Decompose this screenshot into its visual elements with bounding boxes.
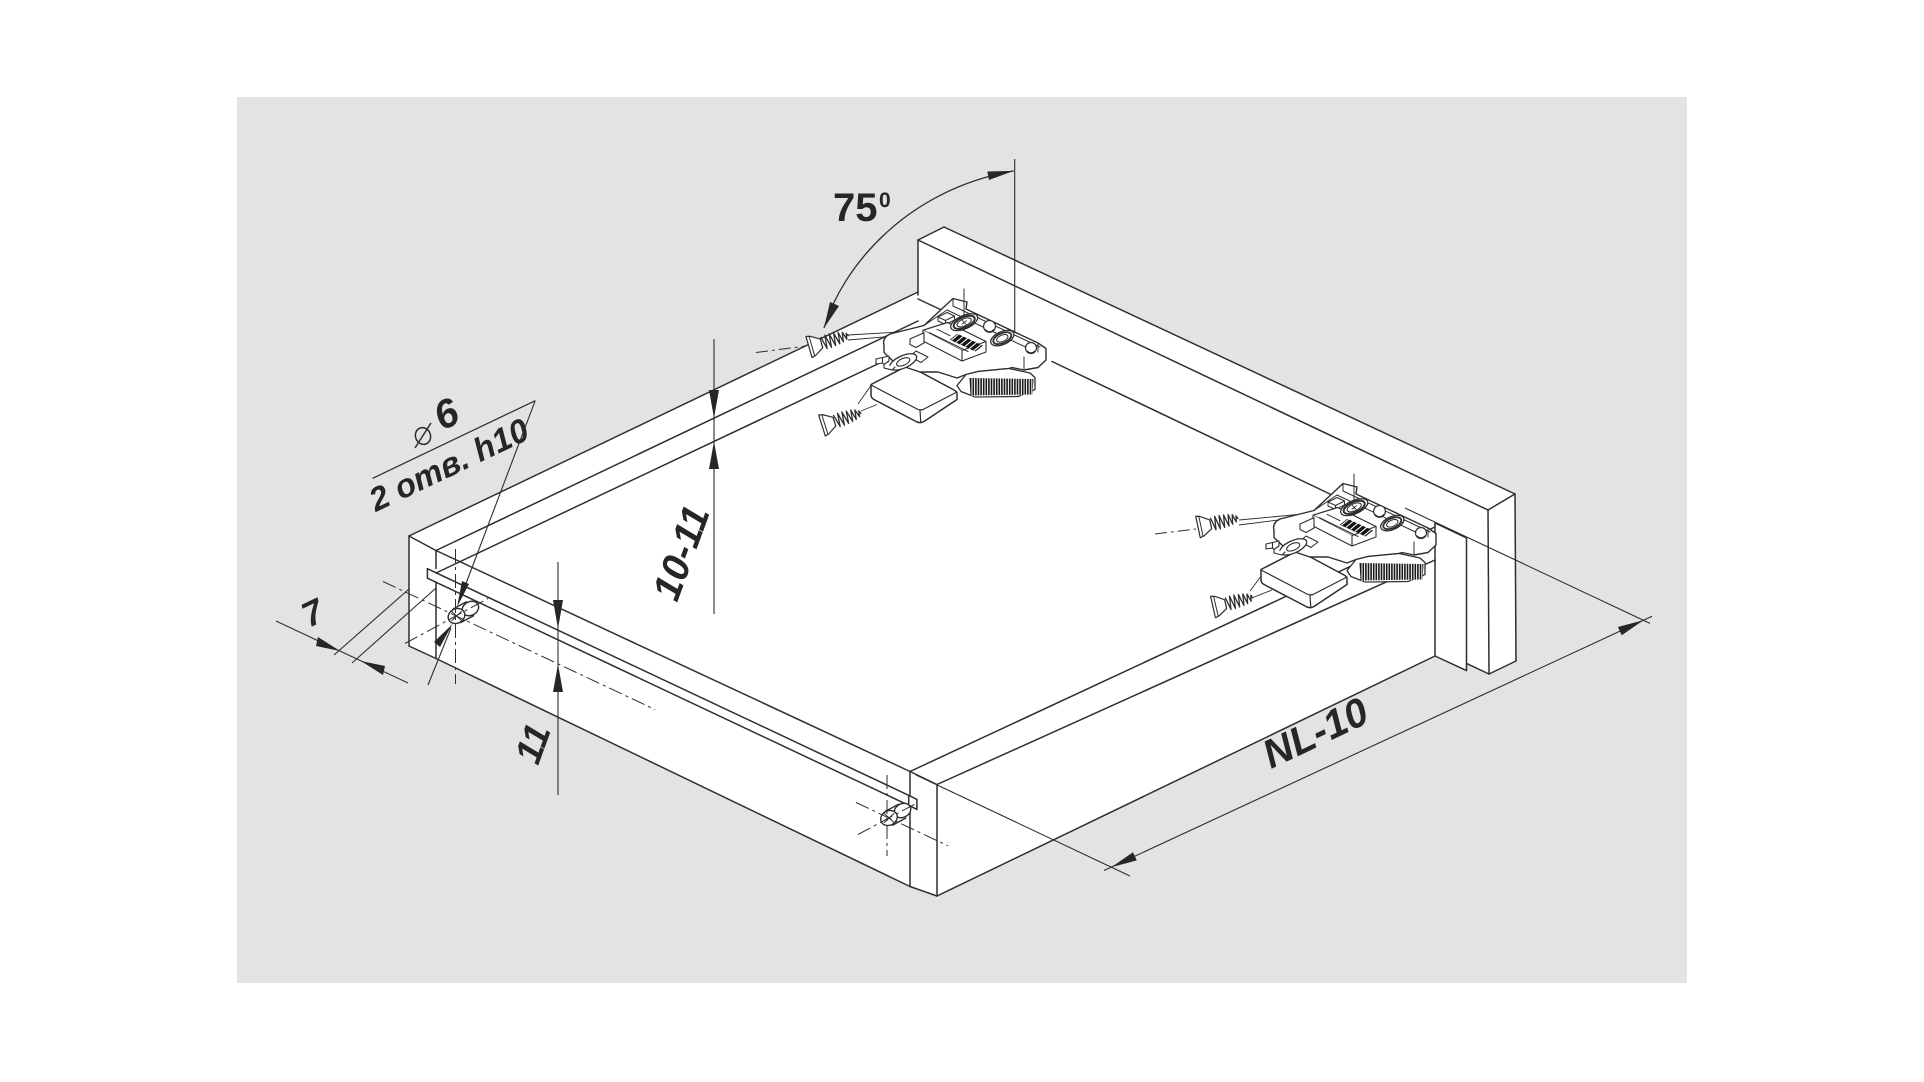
svg-text:75: 75 xyxy=(833,186,878,230)
svg-text:0: 0 xyxy=(879,189,891,212)
